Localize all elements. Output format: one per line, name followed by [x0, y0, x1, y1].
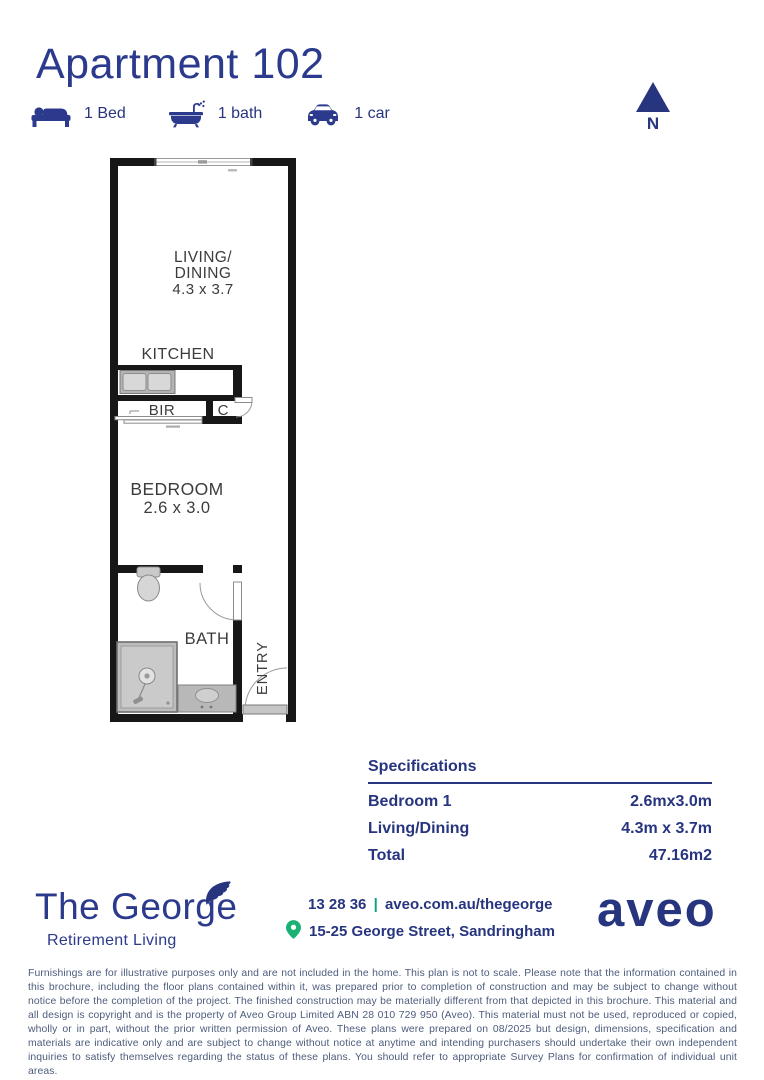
living-dims: 4.3 x 3.7 — [172, 281, 233, 298]
contact-address-row: 15-25 George Street, Sandringham — [286, 920, 555, 943]
disclaimer-text: Furnishings are for illustrative purpose… — [28, 967, 737, 1079]
shower — [117, 642, 177, 712]
website-url: aveo.com.au/thegeorge — [385, 896, 553, 913]
spec-value: 2.6mx3.0m — [630, 793, 712, 811]
phone-number: 13 28 36 — [308, 896, 366, 913]
bedroom-label: BEDROOM — [130, 479, 223, 499]
floor-plan: LIVING/ DINING 4.3 x 3.7 KITCHEN BIR C B… — [110, 158, 296, 722]
page-title: Apartment 102 — [36, 40, 325, 89]
specifications-title: Specifications — [368, 758, 712, 784]
aveo-logo: aveo — [597, 882, 717, 938]
bath-label: BATH — [185, 630, 230, 648]
brochure-page: Apartment 102 1 Bed — [0, 0, 764, 1080]
spec-row-living: Living/Dining 4.3m x 3.7m — [368, 820, 712, 838]
feature-bath-label: 1 bath — [218, 105, 262, 123]
spec-label: Total — [368, 847, 405, 865]
specifications-table: Specifications Bedroom 1 2.6mx3.0m Livin… — [368, 758, 712, 865]
spec-label: Living/Dining — [368, 820, 469, 838]
living-label-2: DINING — [175, 265, 232, 282]
contact-block: 13 28 36 | aveo.com.au/thegeorge 15-25 G… — [286, 896, 555, 943]
leaf-icon — [200, 871, 238, 917]
the-george-logo: The George Retirement Living — [35, 886, 237, 950]
bir-label: BIR — [149, 402, 176, 419]
entry-label: ENTRY — [255, 641, 271, 695]
kitchen-sink — [120, 371, 175, 394]
feature-list: 1 Bed 1 bath — [30, 100, 418, 128]
cupboard-label: C — [218, 402, 229, 419]
bath-icon — [168, 100, 206, 128]
bedroom-dims: 2.6 x 3.0 — [144, 499, 211, 517]
spec-row-bedroom: Bedroom 1 2.6mx3.0m — [368, 793, 712, 811]
car-icon — [304, 101, 342, 127]
separator: | — [371, 896, 381, 913]
north-label: N — [633, 114, 673, 134]
spec-value: 47.16m2 — [649, 847, 712, 865]
vanity — [178, 685, 236, 712]
feature-car-label: 1 car — [354, 105, 390, 123]
feature-bath: 1 bath — [168, 100, 262, 128]
brand-name: The George — [35, 886, 237, 928]
compass: N — [633, 82, 673, 134]
spec-label: Bedroom 1 — [368, 793, 452, 811]
living-label-1: LIVING/ — [174, 249, 232, 266]
kitchen-label: KITCHEN — [141, 346, 214, 363]
feature-bed-label: 1 Bed — [84, 105, 126, 123]
toilet — [137, 567, 160, 601]
brand-tagline: Retirement Living — [47, 932, 237, 950]
feature-bed: 1 Bed — [30, 101, 126, 128]
location-pin-icon — [286, 920, 301, 943]
spec-row-total: Total 47.16m2 — [368, 847, 712, 865]
contact-phone-web: 13 28 36 | aveo.com.au/thegeorge — [308, 896, 555, 913]
spec-value: 4.3m x 3.7m — [621, 820, 712, 838]
street-address: 15-25 George Street, Sandringham — [309, 923, 555, 940]
bed-icon — [30, 101, 72, 128]
north-arrow-icon — [636, 82, 670, 112]
feature-car: 1 car — [304, 101, 390, 127]
